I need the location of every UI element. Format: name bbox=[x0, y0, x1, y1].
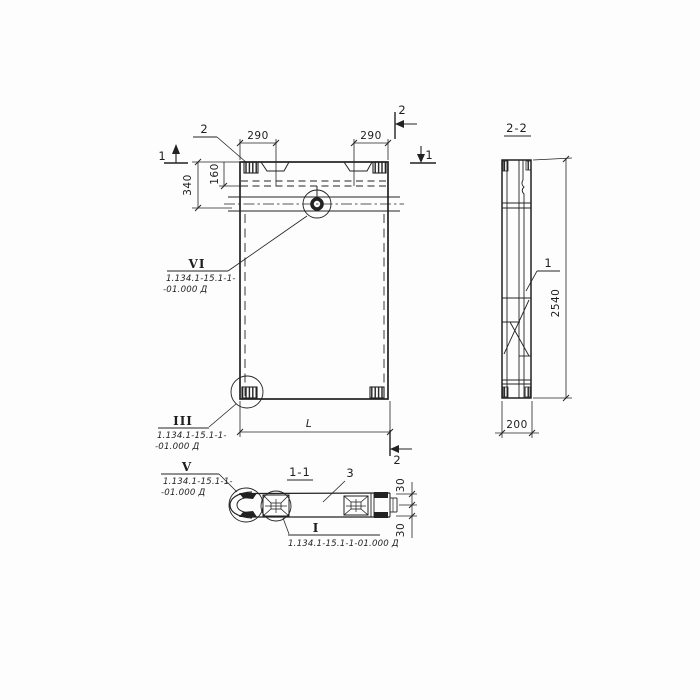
lifting-block-top-right bbox=[373, 162, 386, 173]
detail-iii-numeral: III bbox=[173, 414, 193, 428]
corner-hatch bbox=[526, 161, 531, 170]
drawing-sheet: 290 290 340 160 L 1 1 2 2 2 VI 1.134.1-1… bbox=[0, 0, 700, 700]
end-cap-inner-arc bbox=[237, 497, 250, 513]
right-end-flange bbox=[374, 492, 388, 498]
detail-vi-numeral: VI bbox=[188, 257, 206, 271]
arrow-down-icon bbox=[417, 154, 425, 163]
end-cap-flange bbox=[239, 493, 257, 499]
right-end-flange bbox=[374, 512, 388, 518]
detail-i-doc: 1.134.1-15.1-1-01.000 Д bbox=[288, 539, 399, 549]
keyway-edge bbox=[361, 496, 368, 502]
lifting-block-bottom-left bbox=[242, 387, 257, 398]
section-1-1-labels: 1-1 3 30 30 V 1.134.1-15.1-1- -01.000 Д … bbox=[161, 460, 407, 549]
dim-340-label: 340 bbox=[182, 174, 194, 196]
keyway-edge bbox=[344, 496, 351, 502]
dim-290-left-label: 290 bbox=[247, 130, 269, 142]
arrow-left-icon bbox=[395, 120, 404, 128]
body-top-edge bbox=[250, 493, 390, 494]
section-1-1-title: 1-1 bbox=[289, 465, 311, 479]
keyway-edge bbox=[344, 509, 351, 515]
dim-290-right-label: 290 bbox=[360, 130, 382, 142]
corner-hatch bbox=[503, 161, 508, 171]
dim-160-label: 160 bbox=[209, 163, 221, 185]
detail-iii-leader bbox=[209, 404, 236, 427]
end-cap-flange bbox=[239, 511, 257, 517]
corner-hatch bbox=[525, 387, 530, 397]
lifting-block-top-left bbox=[244, 162, 258, 173]
detail-vi-doc-line1: 1.134.1-15.1-1- bbox=[166, 274, 236, 284]
dim-200-label: 200 bbox=[506, 419, 528, 431]
lifting-block-bottom-right bbox=[370, 387, 384, 398]
keyway-edge bbox=[361, 509, 368, 515]
dim-30-bottom-label: 30 bbox=[395, 523, 407, 537]
detail-i-numeral: I bbox=[313, 521, 320, 535]
part-1-label: 1 bbox=[544, 256, 551, 270]
dim-30-top-label: 30 bbox=[395, 478, 407, 492]
detail-i-leader bbox=[283, 518, 289, 534]
arrow-left-icon bbox=[390, 445, 399, 453]
section-2-2-title: 2-2 bbox=[506, 121, 528, 135]
detail-iii-doc-line1: 1.134.1-15.1-1- bbox=[157, 431, 227, 441]
recess-top-left bbox=[261, 162, 289, 171]
detail-v-numeral: V bbox=[181, 460, 192, 474]
cut-marker-1-right-label: 1 bbox=[425, 148, 432, 162]
detail-v-doc-line2: -01.000 Д bbox=[161, 488, 206, 498]
detail-vi-doc-line2: -01.000 Д bbox=[163, 285, 208, 295]
detail-iii-doc-line2: -01.000 Д bbox=[155, 442, 200, 452]
loop-callout-label: 2 bbox=[200, 122, 207, 136]
plan-view-labels: 290 290 340 160 L 1 1 2 2 2 VI 1.134.1-1… bbox=[155, 103, 433, 467]
cut-marker-2-top-label: 2 bbox=[398, 103, 405, 117]
plan-view bbox=[158, 112, 436, 456]
technical-drawing: 290 290 340 160 L 1 1 2 2 2 VI 1.134.1-1… bbox=[0, 0, 700, 700]
dim-L-label: L bbox=[306, 418, 312, 430]
dim-2540-label: 2540 bbox=[550, 289, 562, 318]
cut-marker-1-left-label: 1 bbox=[158, 149, 165, 163]
detail-v-doc-line1: 1.134.1-15.1-1- bbox=[163, 477, 233, 487]
section-2-2-outline bbox=[502, 160, 531, 398]
corner-hatch bbox=[503, 387, 508, 397]
part-3-leader bbox=[323, 481, 345, 502]
inner-edge-break bbox=[522, 160, 524, 398]
pocket-diagonal bbox=[510, 322, 529, 356]
arrow-up-icon bbox=[172, 144, 180, 154]
recess-top-right bbox=[344, 162, 372, 171]
cut-marker-2-bottom-label: 2 bbox=[393, 453, 400, 467]
pocket-diagonal bbox=[504, 300, 529, 354]
part-3-label: 3 bbox=[346, 466, 353, 480]
section-2-2 bbox=[495, 136, 572, 438]
